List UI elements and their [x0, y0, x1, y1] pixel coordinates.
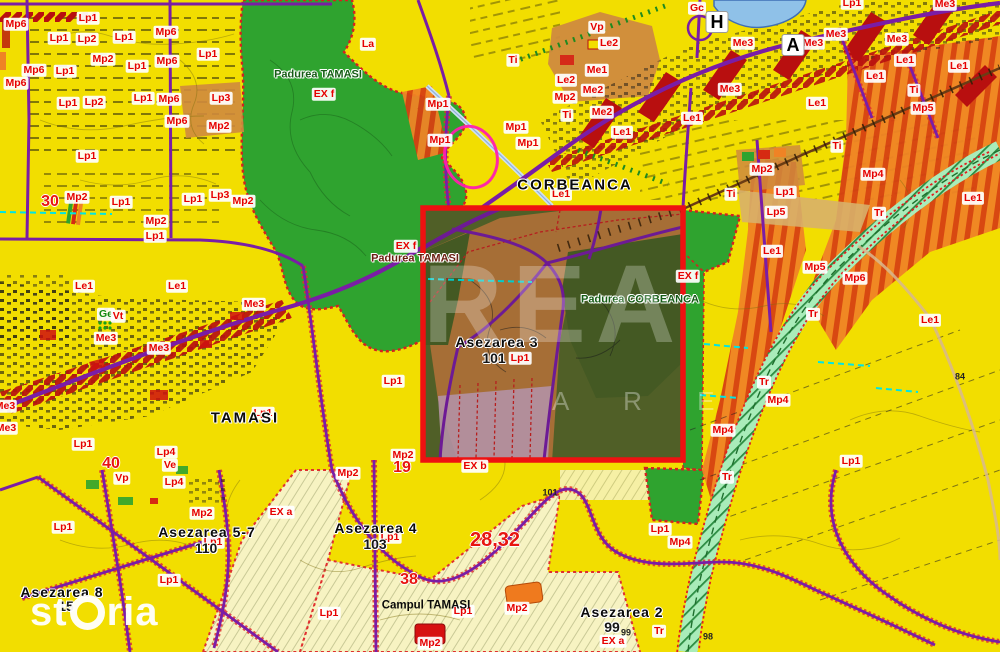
selection-interior — [423, 204, 683, 462]
map-screenshot: Mp6Mp6Mp6Mp6Mp6Mp6Mp6Mp6Lp1Lp1Lp1Lp1Lp1L… — [0, 0, 1000, 652]
map-canvas — [0, 0, 1000, 652]
